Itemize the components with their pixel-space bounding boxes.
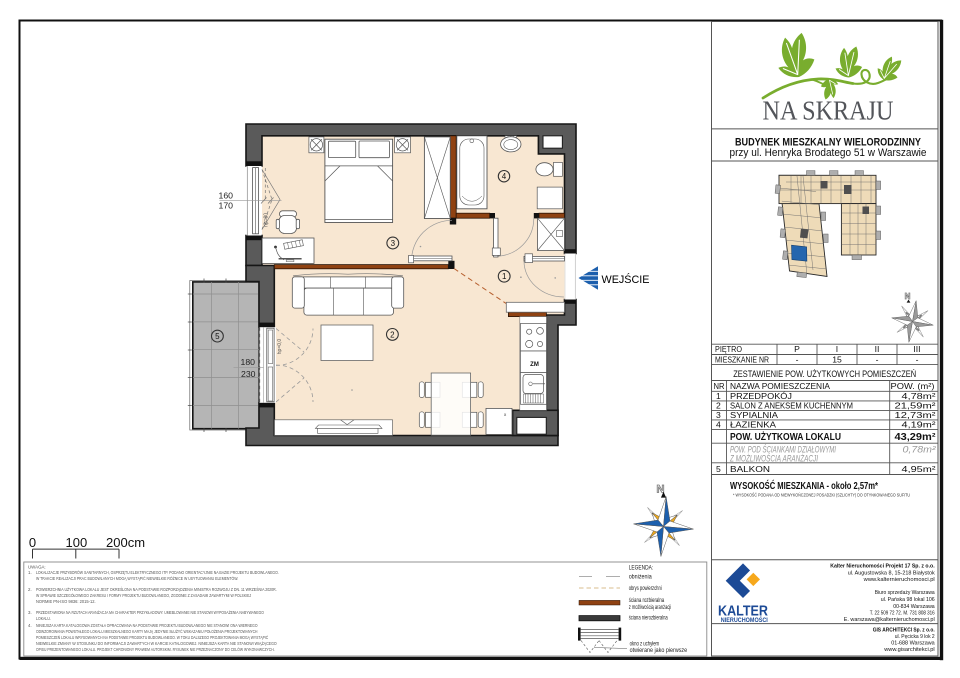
svg-text:SALON Z ANEKSEM KUCHENNYM: SALON Z ANEKSEM KUCHENNYM bbox=[730, 400, 853, 410]
svg-text:0: 0 bbox=[29, 535, 36, 550]
svg-text:* WYSOKOŚĆ PODANA OD NIEWYKOŃC: * WYSOKOŚĆ PODANA OD NIEWYKOŃCZONEJ POSA… bbox=[733, 491, 910, 498]
svg-text:PRZEDSTAWIONA NA RZUTACH ARANŻ: PRZEDSTAWIONA NA RZUTACH ARANŻACJA MA CH… bbox=[36, 610, 264, 615]
svg-text:II: II bbox=[875, 344, 880, 354]
svg-text:PIĘTRO: PIĘTRO bbox=[715, 344, 742, 354]
svg-text:Biuro sprzedaży Warszawa: Biuro sprzedaży Warszawa bbox=[875, 590, 936, 596]
svg-text:LOKALU.: LOKALU. bbox=[36, 616, 51, 621]
svg-text:NAZWA POMIESZCZENIA: NAZWA POMIESZCZENIA bbox=[730, 381, 830, 391]
svg-text:100: 100 bbox=[66, 535, 88, 550]
svg-text:4.: 4. bbox=[28, 623, 32, 628]
svg-text:NIEWIELKIE ZMIANY W STOSUNKU D: NIEWIELKIE ZMIANY W STOSUNKU DO INFORMAC… bbox=[36, 641, 277, 646]
svg-text:4,78m²: 4,78m² bbox=[902, 391, 936, 401]
svg-text:WYSOKOŚĆ MIESZKANIA - około 2,: WYSOKOŚĆ MIESZKANIA - około 2,57m* bbox=[730, 480, 878, 492]
svg-text:170: 170 bbox=[219, 200, 234, 210]
svg-text:4,95m²: 4,95m² bbox=[902, 464, 936, 474]
svg-text:LOKALIZACJE PRZYBORÓW SANITARN: LOKALIZACJE PRZYBORÓW SANITARNYCH, OSPRZ… bbox=[36, 570, 279, 575]
svg-text:przy ul. Henryka Brodatego 51: przy ul. Henryka Brodatego 51 w Warszawi… bbox=[730, 147, 927, 159]
svg-text:NR: NR bbox=[714, 381, 725, 391]
svg-text:Z MOŻLIWOŚCIĄ ARANŻACJI: Z MOŻLIWOŚCIĄ ARANŻACJI bbox=[729, 453, 818, 464]
svg-text:T. 22 509 72 72. M. 731 808 31: T. 22 509 72 72. M. 731 808 316 bbox=[870, 611, 935, 617]
svg-text:hp=0,0: hp=0,0 bbox=[277, 339, 283, 355]
svg-text:ŁAZIENKA: ŁAZIENKA bbox=[730, 419, 776, 429]
svg-text:2: 2 bbox=[716, 400, 721, 410]
svg-text:POW. UŻYTKOWA LOKALU: POW. UŻYTKOWA LOKALU bbox=[730, 432, 841, 443]
svg-text:W SPRAWIE SZCZEGÓŁOWEGO ZAKRES: W SPRAWIE SZCZEGÓŁOWEGO ZAKRESU I FORMY … bbox=[36, 593, 251, 598]
svg-text:E. warszawa@kalternieruchomosc: E. warszawa@kalternieruchomosci.pl bbox=[844, 617, 935, 623]
svg-text:43,29m²: 43,29m² bbox=[895, 432, 937, 443]
svg-text:z możliwością aranżacji: z możliwością aranżacji bbox=[629, 604, 672, 611]
svg-text:ul. Augustowska 8, 15-218 Biał: ul. Augustowska 8, 15-218 Białystok bbox=[848, 570, 935, 576]
svg-text:GIS ARCHITEKCI Sp. z o.o.: GIS ARCHITEKCI Sp. z o.o. bbox=[873, 628, 935, 634]
svg-text:4: 4 bbox=[502, 172, 507, 181]
svg-text:200cm: 200cm bbox=[106, 535, 145, 550]
svg-text:1: 1 bbox=[502, 272, 507, 281]
svg-text:0,78m²: 0,78m² bbox=[903, 445, 937, 455]
svg-text:ODWZOROWANIA POWSTAŁEGO LOKALU: ODWZOROWANIA POWSTAŁEGO LOKALU MIESZKALN… bbox=[36, 629, 258, 634]
svg-text:LEGENDA:: LEGENDA: bbox=[629, 564, 654, 571]
svg-text:obniżenia: obniżenia bbox=[629, 573, 652, 580]
svg-text:MIESZKANIE NR: MIESZKANIE NR bbox=[715, 354, 769, 364]
svg-text:01-688 Warszawa: 01-688 Warszawa bbox=[891, 641, 935, 647]
svg-text:4,19m²: 4,19m² bbox=[902, 419, 936, 429]
svg-text:5: 5 bbox=[716, 464, 721, 474]
svg-text:3: 3 bbox=[391, 239, 396, 248]
svg-text:ZM: ZM bbox=[530, 362, 539, 368]
svg-text:ul. Pęcicka 9 lok 2: ul. Pęcicka 9 lok 2 bbox=[895, 634, 935, 640]
svg-text:3.: 3. bbox=[28, 610, 32, 615]
svg-text:15: 15 bbox=[832, 354, 842, 364]
svg-text:P: P bbox=[794, 344, 800, 354]
svg-text:I: I bbox=[836, 344, 838, 354]
svg-text:21,59m²: 21,59m² bbox=[895, 400, 936, 410]
svg-text:www.kalternieruchomosci.pl: www.kalternieruchomosci.pl bbox=[863, 577, 935, 583]
svg-text:III: III bbox=[913, 344, 920, 354]
svg-text:BALKON: BALKON bbox=[730, 464, 770, 474]
svg-text:-: - bbox=[916, 354, 919, 364]
svg-text:5: 5 bbox=[215, 332, 220, 341]
svg-text:Kalter Nieruchomości Projekt 1: Kalter Nieruchomości Projekt 17 Sp. z o.… bbox=[830, 564, 935, 570]
svg-text:hp=80: hp=80 bbox=[264, 213, 270, 227]
svg-text:-: - bbox=[876, 354, 879, 364]
svg-text:www.gisarchitekci.pl: www.gisarchitekci.pl bbox=[883, 647, 934, 653]
svg-text:W TRAKCIE REALIZACJI PRAC BUDO: W TRAKCIE REALIZACJI PRAC BUDOWLANYCH MO… bbox=[36, 576, 238, 581]
svg-text:POWIERZCHNIA UŻYTKOWA LOKALU J: POWIERZCHNIA UŻYTKOWA LOKALU JEST OKREŚL… bbox=[36, 587, 277, 592]
svg-text:ZESTAWIENIE POW. UŻYTKOWYCH PO: ZESTAWIENIE POW. UŻYTKOWYCH POMIESZCZEŃ bbox=[733, 369, 916, 380]
svg-text:NORMIE PN-ISO 9836: 2015-12.: NORMIE PN-ISO 9836: 2015-12. bbox=[36, 599, 96, 604]
svg-text:ul. Pańska 98 lokal 106: ul. Pańska 98 lokal 106 bbox=[881, 597, 935, 603]
svg-text:00-834 Warszawa: 00-834 Warszawa bbox=[893, 604, 935, 610]
svg-text:POMIESZCZEŃ LOKALU WRYSOWANYCH: POMIESZCZEŃ LOKALU WRYSOWANYCH NA PODSTA… bbox=[36, 635, 268, 640]
svg-text:180: 180 bbox=[241, 357, 256, 367]
svg-text:NINIEJSZA KARTA KATALOGOWA ZOS: NINIEJSZA KARTA KATALOGOWA ZOSTAŁA OPRAC… bbox=[36, 623, 258, 628]
svg-text:2.: 2. bbox=[28, 587, 32, 592]
svg-text:obrys powierzchni: obrys powierzchni bbox=[629, 585, 662, 592]
svg-text:ściana nierozbieralna: ściana nierozbieralna bbox=[629, 615, 668, 622]
svg-text:4: 4 bbox=[716, 419, 721, 429]
svg-text:POW. (m²): POW. (m²) bbox=[891, 381, 935, 391]
svg-text:160: 160 bbox=[219, 191, 234, 201]
svg-text:otwierane jako pierwsze: otwierane jako pierwsze bbox=[630, 647, 688, 654]
svg-text:1: 1 bbox=[716, 391, 721, 401]
svg-text:2: 2 bbox=[390, 330, 395, 339]
svg-text:NIERUCHOMOŚCI: NIERUCHOMOŚCI bbox=[721, 617, 768, 624]
svg-text:OPISU PREZENTOWANEGO LOKALU. P: OPISU PREZENTOWANEGO LOKALU. PROJEKT CHR… bbox=[36, 647, 275, 652]
svg-text:230: 230 bbox=[241, 369, 256, 379]
svg-text:N: N bbox=[905, 292, 911, 301]
svg-text:-: - bbox=[796, 354, 799, 364]
svg-text:1.: 1. bbox=[28, 570, 32, 575]
svg-text:PRZEDPOKÓJ: PRZEDPOKÓJ bbox=[730, 391, 792, 401]
svg-text:WEJŚCIE: WEJŚCIE bbox=[602, 273, 650, 286]
svg-text:NA SKRAJU: NA SKRAJU bbox=[763, 95, 894, 126]
svg-text:UWAGA:: UWAGA: bbox=[28, 565, 46, 570]
